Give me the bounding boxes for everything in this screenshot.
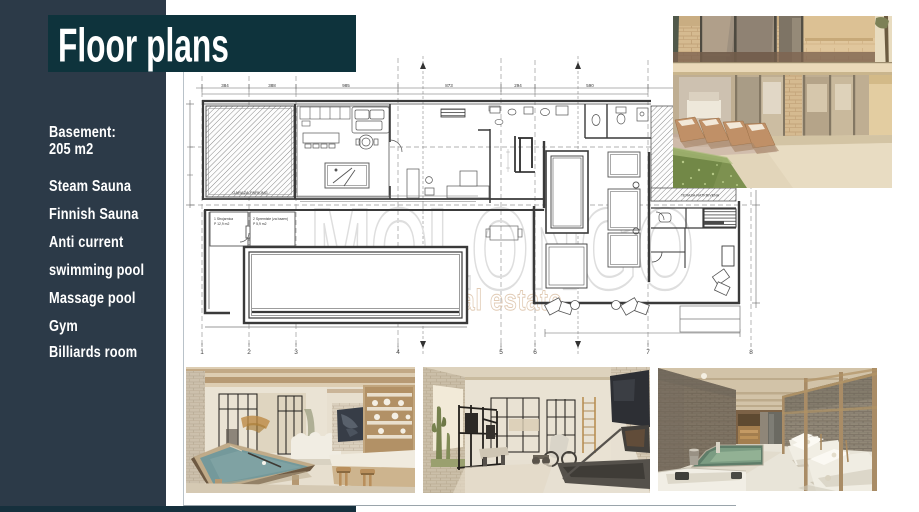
- svg-text:P 5,9 m2: P 5,9 m2: [253, 222, 267, 226]
- svg-text:384: 384: [221, 83, 229, 88]
- svg-text:8: 8: [749, 349, 753, 356]
- svg-text:GARAZA-PARKING: GARAZA-PARKING: [232, 190, 268, 195]
- svg-text:388: 388: [268, 83, 276, 88]
- svg-text:5: 5: [499, 349, 503, 356]
- svg-text:P 12,9 m2: P 12,9 m2: [214, 222, 230, 226]
- svg-text:3: 3: [294, 349, 298, 356]
- svg-text:7: 7: [646, 349, 650, 356]
- svg-text:2: 2: [247, 349, 251, 356]
- svg-text:6: 6: [533, 349, 537, 356]
- svg-text:Floor plans: Floor plans: [58, 20, 229, 72]
- svg-text:2 Spremiste (za bazen): 2 Spremiste (za bazen): [253, 217, 288, 221]
- svg-text:294: 294: [514, 83, 522, 88]
- svg-text:4: 4: [396, 349, 400, 356]
- svg-text:TERASA-NATKRIVENA: TERASA-NATKRIVENA: [681, 194, 720, 198]
- svg-text:590: 590: [586, 83, 594, 88]
- svg-text:985: 985: [342, 83, 350, 88]
- svg-text:1 Strojarnica: 1 Strojarnica: [214, 217, 233, 221]
- svg-text:1: 1: [200, 349, 204, 356]
- svg-text:873: 873: [445, 83, 453, 88]
